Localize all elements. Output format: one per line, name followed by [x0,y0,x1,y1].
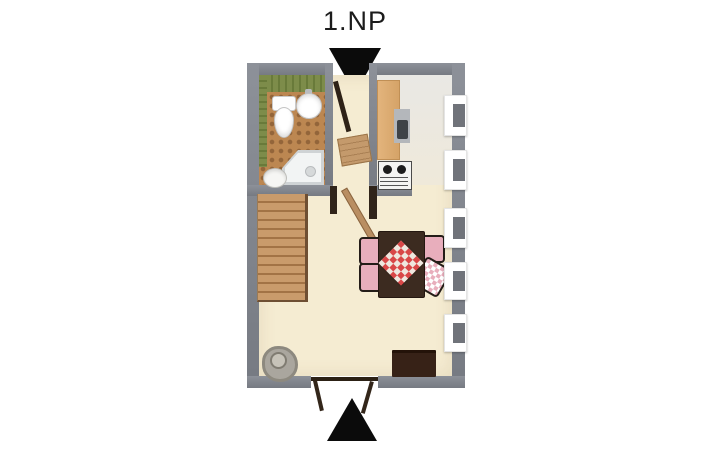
kitchen-sink [397,120,408,139]
window [444,262,467,300]
wall-kitchen-left [369,63,377,196]
window-pane [453,217,465,239]
window [444,208,467,248]
door-frame-post [369,186,377,219]
bathroom-tile-wall [259,75,325,92]
window [444,95,467,136]
stove-burner [383,165,392,174]
wash-basin [296,93,322,119]
window-pane [453,159,465,181]
window [444,314,467,352]
window [444,150,467,190]
stove-grate [380,177,408,178]
entrance-arrow-up-icon [327,398,377,441]
plant-pot-opening [270,352,287,369]
shower-drain [305,166,316,177]
bathroom-tile-wall-side [259,75,267,167]
window-pane [453,271,465,291]
wall-bottom-right [378,376,465,388]
wall-top-left [247,63,332,75]
terrace-door-threshold [311,377,378,381]
door-frame-post [330,186,337,214]
window-pane [453,323,465,343]
bidet [263,168,287,188]
stove-grate [380,185,408,186]
french-door-left-leaf [313,380,324,411]
sideboard [392,350,436,377]
floor-title: 1.NP [290,6,420,37]
wall-bathroom-right [325,63,333,190]
floorplan [247,63,465,388]
stove-burner [397,165,406,174]
french-door-right-leaf [361,381,374,414]
floorplan-canvas: 1.NP [0,0,702,468]
stove-grate [380,181,408,182]
window-pane [453,104,465,127]
bathroom-door-leaf [337,134,372,167]
staircase [257,194,308,302]
